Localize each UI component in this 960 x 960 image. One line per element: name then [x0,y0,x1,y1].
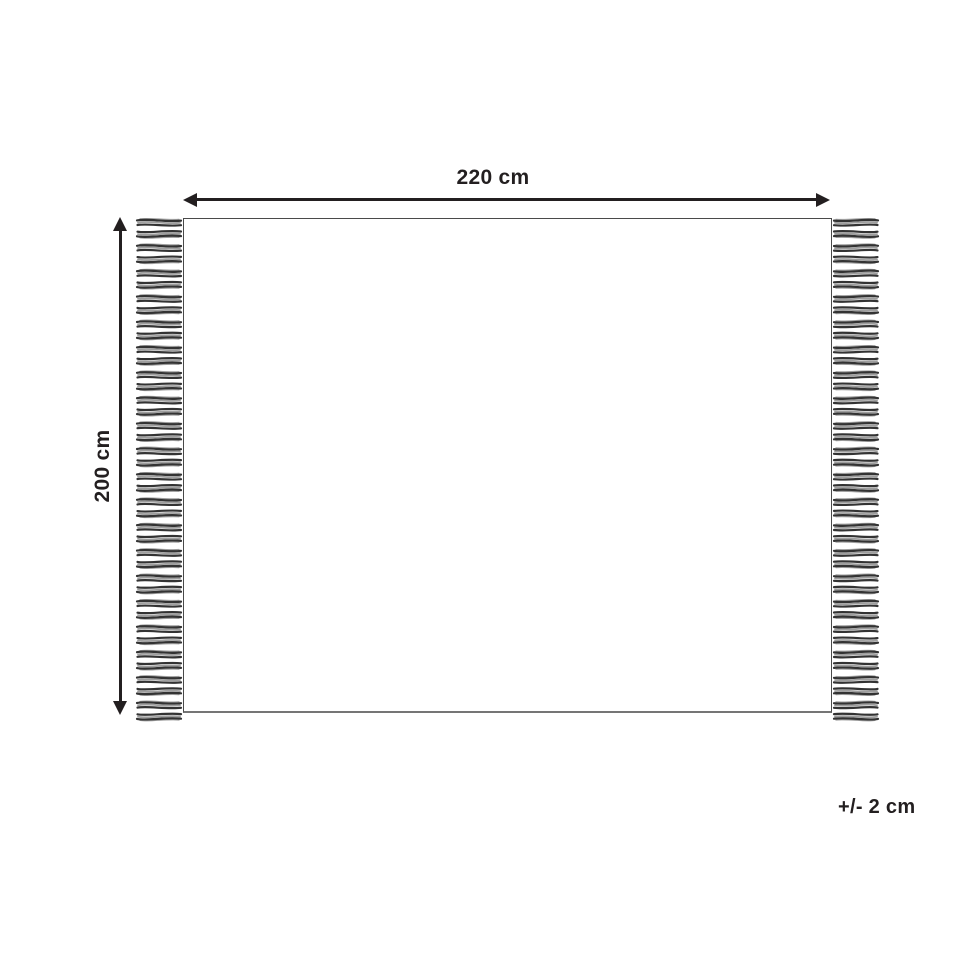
arrowhead-right-icon [816,193,830,207]
height-dimension-label: 200 cm [91,429,115,502]
arrowhead-down-icon [113,701,127,715]
rug-outline [183,218,832,713]
width-dimension-line [194,198,818,201]
width-dimension-label: 220 cm [433,166,553,190]
height-dimension-line [119,230,122,702]
tolerance-note: +/- 2 cm [838,796,915,819]
arrowhead-left-icon [183,193,197,207]
dimension-diagram: 220 cm 200 cm +/- 2 cm [0,0,960,960]
fringe-right [831,215,880,727]
arrowhead-up-icon [113,217,127,231]
fringe-left [135,215,184,727]
